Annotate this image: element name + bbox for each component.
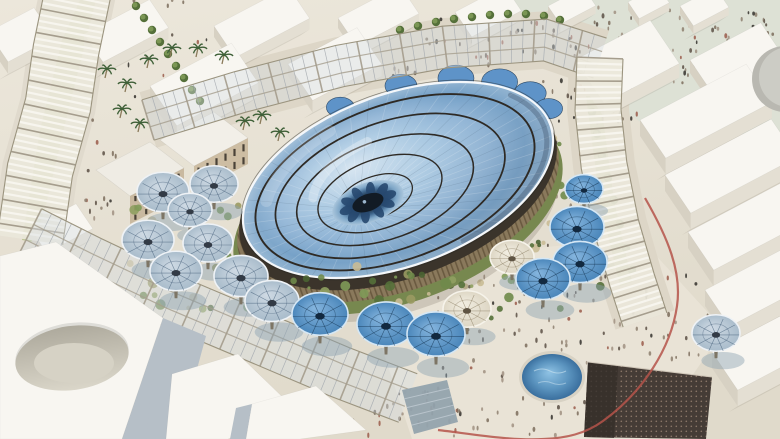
street-tree	[522, 10, 530, 18]
street-tree	[504, 10, 512, 18]
street-tree	[180, 74, 188, 82]
street-tree	[414, 22, 422, 30]
water-pool	[519, 351, 585, 403]
street-tree	[450, 15, 458, 23]
street-tree	[432, 18, 440, 26]
street-tree	[486, 11, 494, 19]
street-tree	[140, 14, 148, 22]
street-tree	[468, 13, 476, 21]
street-tree	[148, 26, 156, 34]
expo-aerial-rendering	[0, 0, 780, 439]
street-tree	[132, 2, 140, 10]
street-tree	[156, 38, 164, 46]
aerial-render-canvas	[0, 0, 780, 439]
street-tree	[172, 62, 180, 70]
